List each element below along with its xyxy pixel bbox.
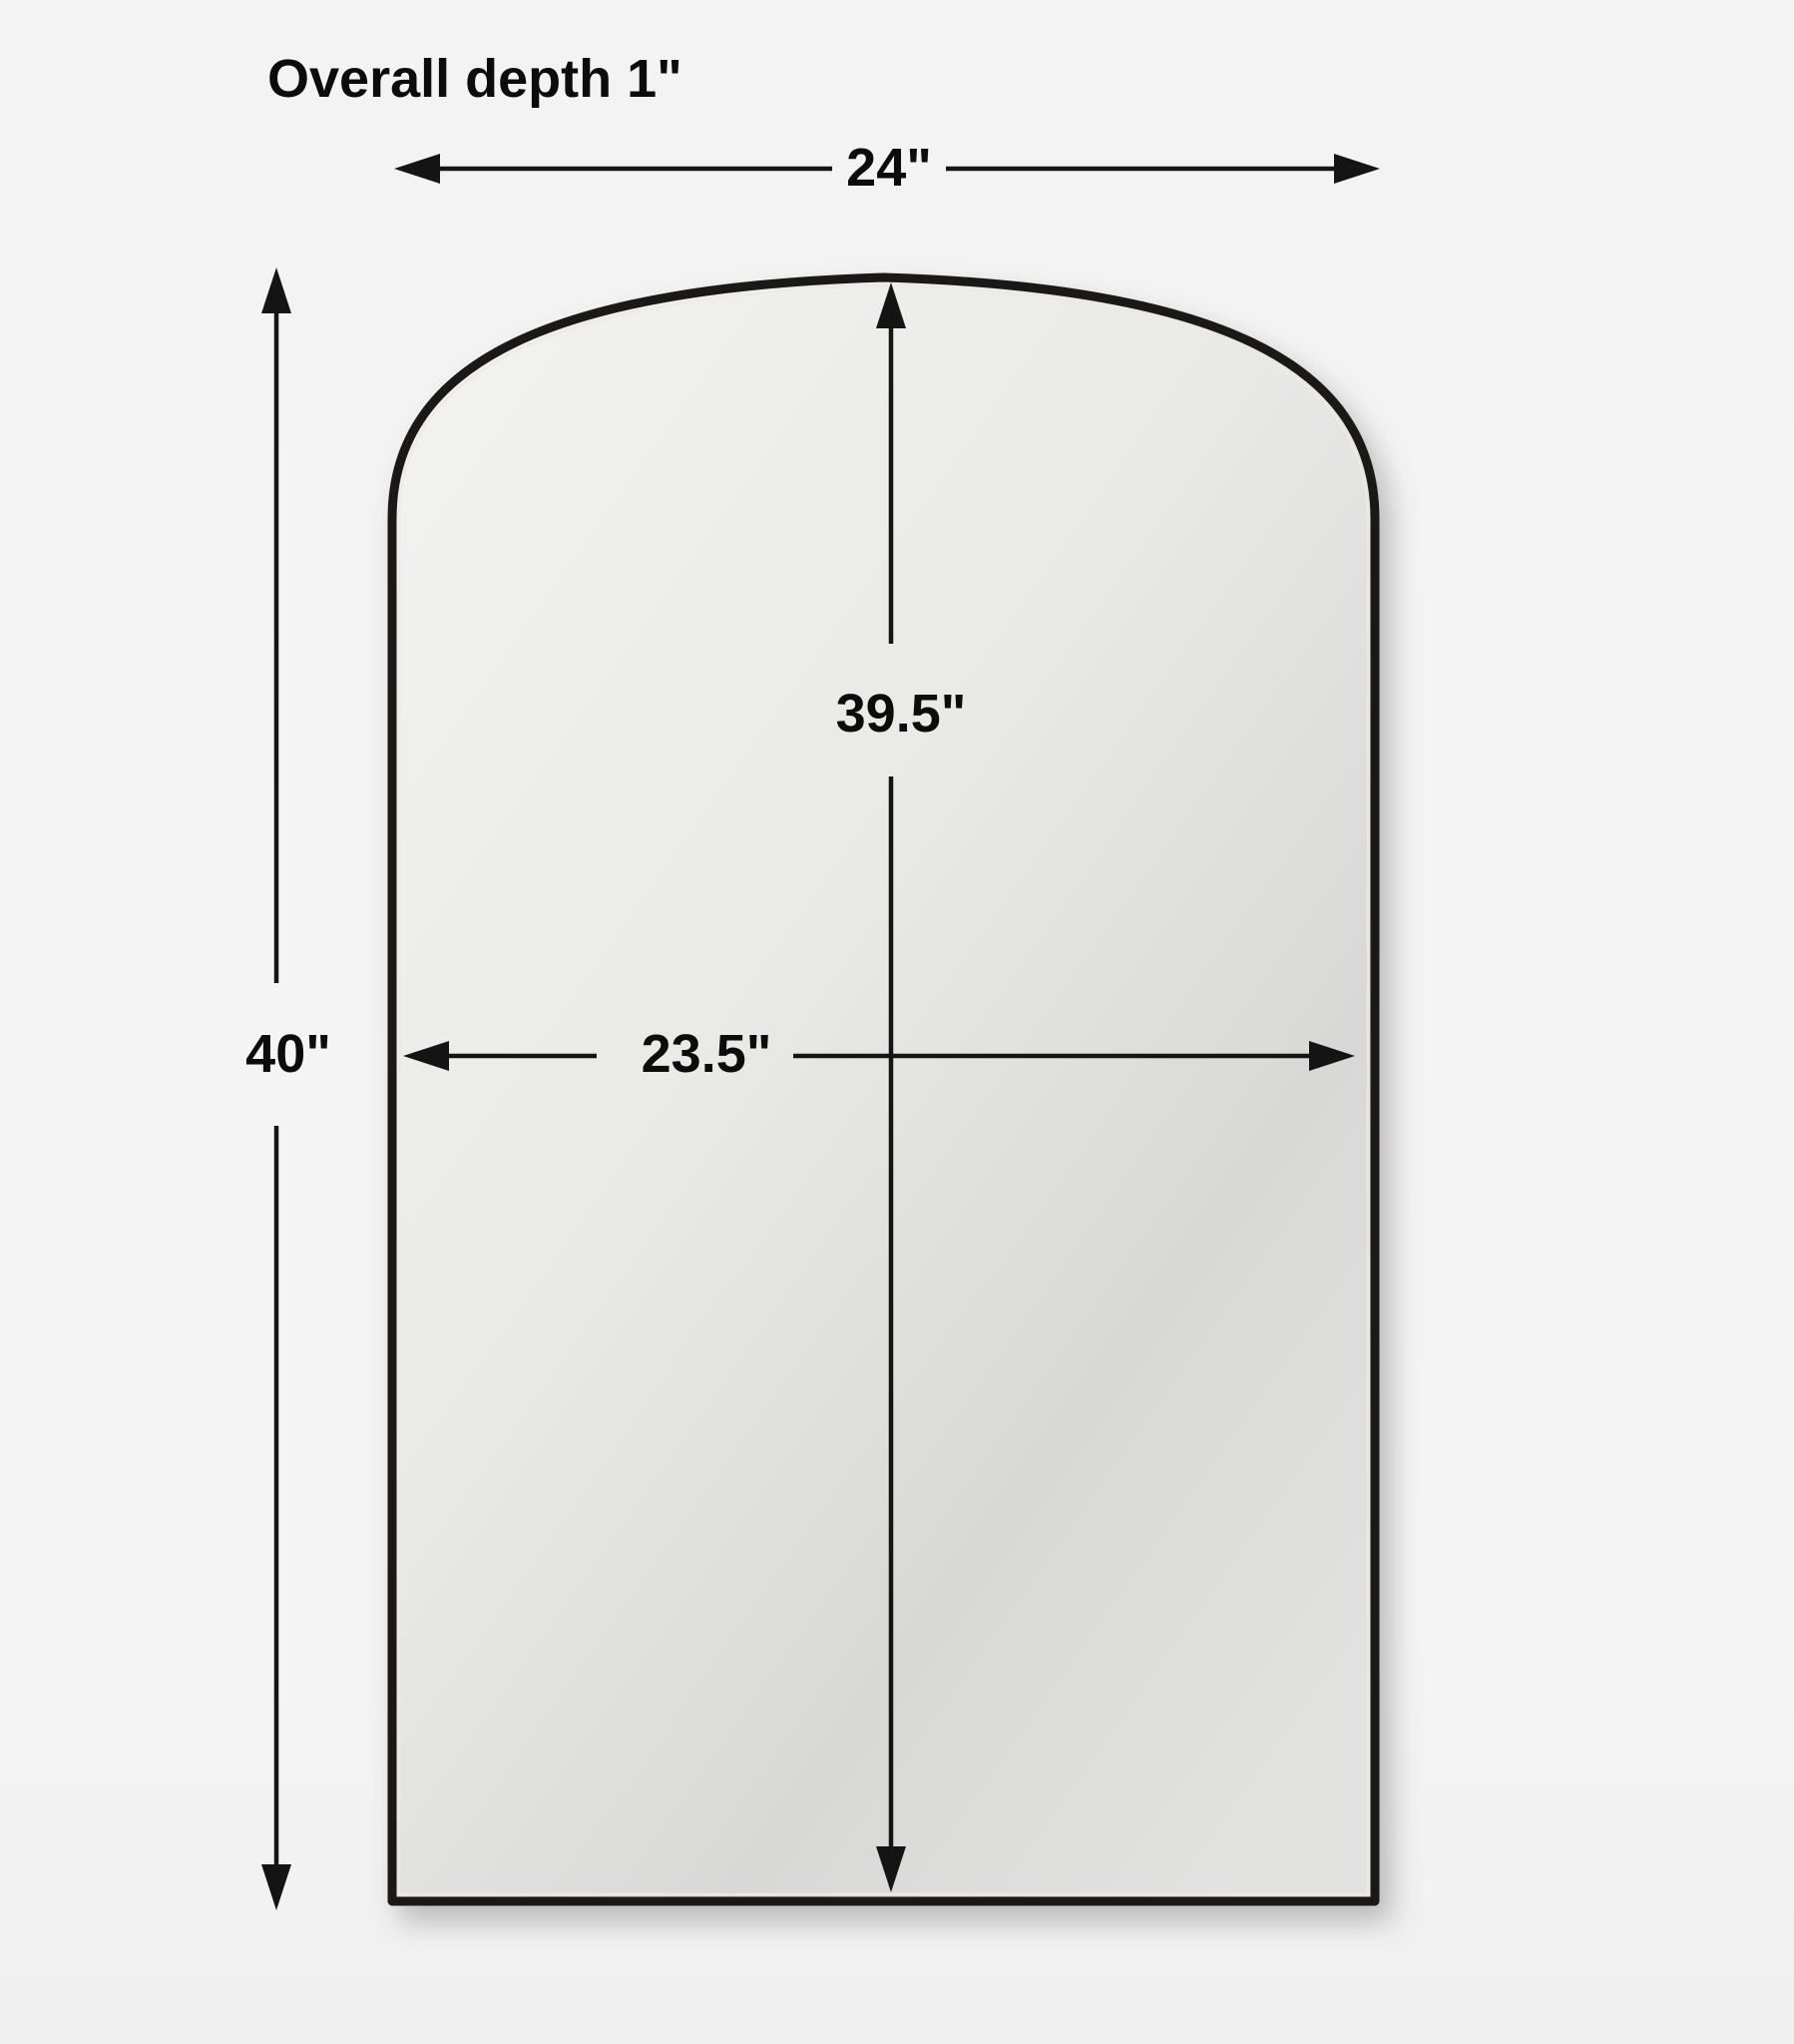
arrow-down-icon	[261, 1864, 291, 1910]
mirror-width-label: 23.5"	[642, 1027, 772, 1081]
arrow-up-icon	[261, 267, 291, 313]
dimension-diagram: Overall depth 1" 24" 40" 39.5" 23.5"	[0, 0, 1794, 2044]
arrow-left-icon	[394, 154, 440, 184]
mirror-frame	[392, 277, 1375, 1901]
mirror-height-label: 39.5"	[836, 687, 967, 741]
mirror	[392, 277, 1375, 1901]
overall-width-label: 24"	[846, 141, 932, 195]
arrow-right-icon	[1334, 154, 1380, 184]
overall-depth-label: Overall depth 1"	[267, 52, 682, 106]
overall-height-label: 40"	[245, 1027, 331, 1081]
mirror-illustration	[0, 0, 1794, 2044]
